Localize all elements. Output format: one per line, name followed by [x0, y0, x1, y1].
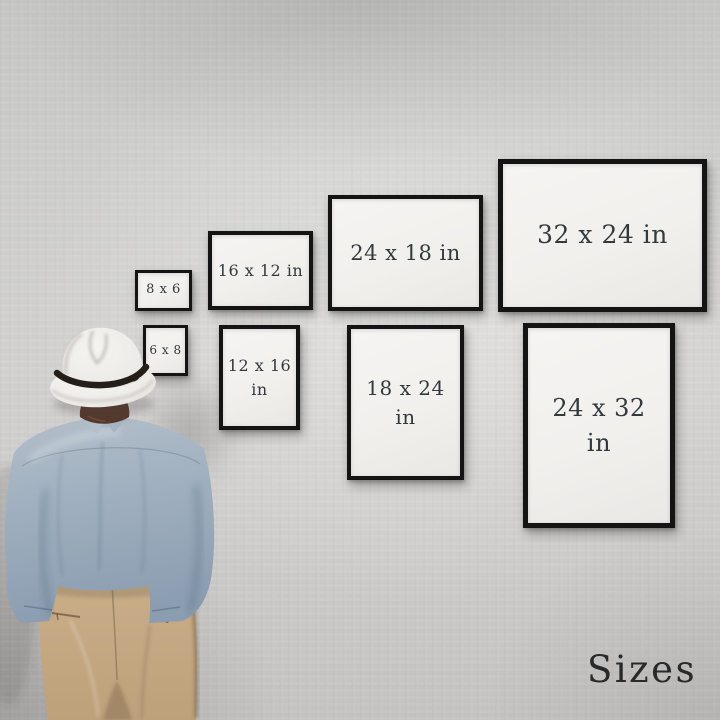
frame-12x16-label: 12 x 16 in — [228, 354, 291, 400]
frame-24x32: 24 x 32 in — [523, 323, 675, 528]
pocket-button — [164, 617, 169, 622]
frame-12x16: 12 x 16 in — [219, 325, 300, 430]
frame-24x32-label: 24 x 32 in — [552, 391, 645, 461]
body-wall-shadow — [0, 465, 36, 705]
frame-18x24: 18 x 24 in — [347, 325, 464, 480]
frame-24x18-label: 24 x 18 in — [350, 238, 461, 268]
shirt-collar — [84, 412, 126, 427]
frame-6x8: 6 x 8 — [143, 325, 188, 376]
frame-8x6: 8 x 6 — [135, 270, 192, 311]
frame-18x24-label: 18 x 24 in — [366, 374, 444, 432]
frame-label-line: in — [366, 403, 444, 432]
frame-32x24-label: 32 x 24 in — [537, 217, 668, 253]
frame-16x12-label: 16 x 12 in — [218, 259, 303, 282]
pants-pocket-left — [52, 613, 80, 617]
frame-label-line: 18 x 24 — [366, 374, 444, 403]
shirt — [5, 412, 214, 623]
hair — [80, 391, 129, 424]
frame-label-line: in — [552, 426, 645, 461]
frame-label-line: in — [228, 378, 291, 401]
belt — [166, 582, 192, 595]
hat-crown — [62, 328, 142, 389]
fedora-hat — [49, 328, 158, 416]
frame-label-line: 24 x 32 — [552, 391, 645, 426]
pants-pocket-right — [150, 614, 182, 618]
sizes-title: Sizes — [587, 651, 697, 688]
frame-6x8-label: 6 x 8 — [149, 342, 181, 359]
frame-8x6-label: 8 x 6 — [146, 281, 181, 300]
man-figure — [0, 320, 240, 720]
hat-band — [57, 367, 146, 385]
frame-label-line: 12 x 16 — [228, 354, 291, 377]
frame-16x12: 16 x 12 in — [208, 231, 313, 310]
frame-24x18: 24 x 18 in — [328, 195, 483, 311]
pants — [39, 580, 197, 720]
scene: 8 x 6 16 x 12 in 24 x 18 in 32 x 24 in 6… — [0, 0, 720, 720]
frame-32x24: 32 x 24 in — [498, 159, 707, 312]
hat-brim — [49, 359, 158, 410]
